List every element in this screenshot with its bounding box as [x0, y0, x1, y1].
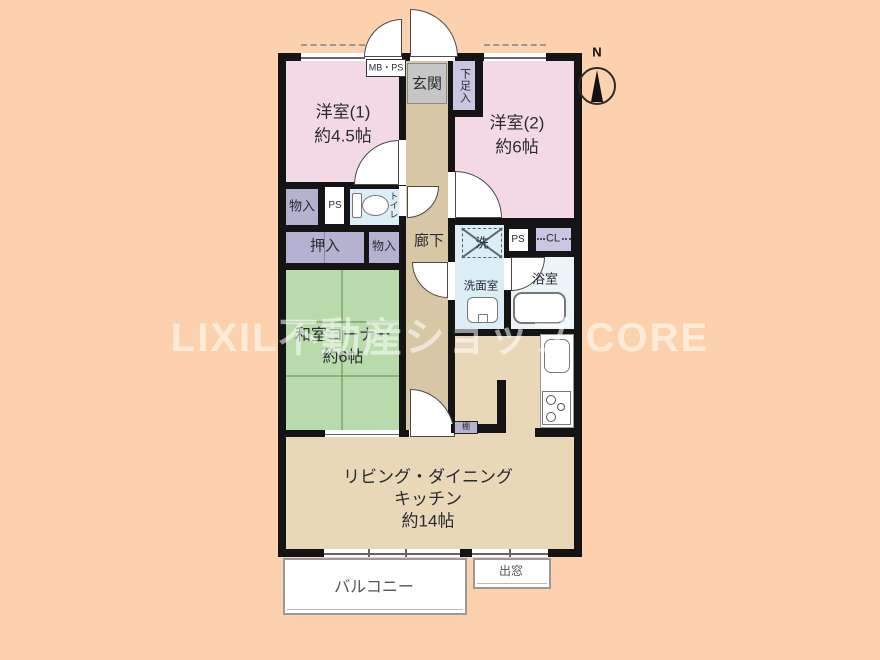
label-ldk-line2: キッチン	[394, 491, 462, 508]
floor-plan: N 洋室(1) 約4.5帖 洋室(2) 約6帖 玄関 下足入 MB・PS 廊下 …	[0, 0, 880, 660]
label-cl: CL	[546, 234, 560, 245]
label-senmenshitsu: 洗面室	[464, 281, 499, 293]
cl-rail-dash	[537, 238, 545, 240]
window-dash-marker	[484, 44, 546, 46]
mbps-door-arc	[364, 19, 402, 57]
stove-burner	[557, 403, 565, 411]
stove-burner	[546, 395, 556, 405]
label-sentakuki: 洗	[475, 237, 488, 250]
label-rouka: 廊下	[414, 234, 444, 249]
label-mbps: MB・PS	[369, 64, 404, 73]
window-dash-marker	[301, 44, 365, 46]
label-yoshitsu2-name: 洋室(2)	[490, 115, 545, 132]
label-yoshitsu2-size: 約6帖	[495, 139, 538, 156]
label-yokushitsu: 浴室	[532, 273, 558, 286]
window-yoshitsu2	[484, 53, 546, 61]
window-tick	[368, 549, 370, 557]
label-ps1: PS	[328, 201, 341, 211]
window-yoshitsu1	[301, 53, 365, 61]
balcony-inner-line	[287, 609, 463, 610]
yoshitsu1-door-gap	[399, 140, 406, 185]
label-yoshitsu1-name: 洋室(1)	[316, 104, 371, 121]
yoshitsu2-door-gap	[448, 172, 455, 218]
window-line	[484, 57, 546, 59]
label-ldk-size: 約14帖	[402, 513, 455, 530]
label-tana: 棚	[462, 423, 470, 431]
label-monoire1: 物入	[289, 200, 315, 213]
window-line	[324, 553, 460, 555]
sliding-door-line	[325, 434, 399, 436]
washitsu-sliding-gap	[325, 430, 399, 437]
toilet-bowl	[362, 195, 389, 216]
label-ldk-line1: リビング・ダイニング	[343, 469, 513, 486]
bath-door-gap	[504, 258, 511, 290]
cl-rail-dash	[562, 238, 571, 240]
label-ps2: PS	[511, 235, 524, 245]
window-tick	[509, 549, 511, 557]
compass-needle-icon	[591, 70, 603, 102]
entrance-door-arc	[410, 9, 458, 57]
label-yoshitsu1-size: 約4.5帖	[314, 128, 372, 145]
toilet-door-gap	[399, 186, 406, 216]
label-monoire2: 物入	[372, 240, 396, 252]
compass-north-label: N	[592, 46, 601, 59]
label-oshiire: 押入	[310, 239, 340, 254]
watermark-text: LIXIL不動産ショップ CORE	[0, 305, 880, 363]
toilet-tank	[352, 193, 362, 218]
label-genkan: 玄関	[412, 77, 442, 92]
label-getabako: 下足入	[459, 68, 470, 104]
senmen-door-gap	[448, 262, 455, 300]
window-tick	[405, 549, 407, 557]
window-living	[324, 549, 460, 557]
kitchen-bottom-wall	[535, 428, 582, 437]
stove-burner	[546, 412, 556, 422]
demado-inner-line	[477, 583, 547, 584]
label-demado: 出窓	[499, 565, 523, 577]
window-line	[301, 57, 365, 59]
label-balcony: バルコニー	[334, 580, 414, 596]
label-toilet: トイレ	[389, 192, 398, 219]
